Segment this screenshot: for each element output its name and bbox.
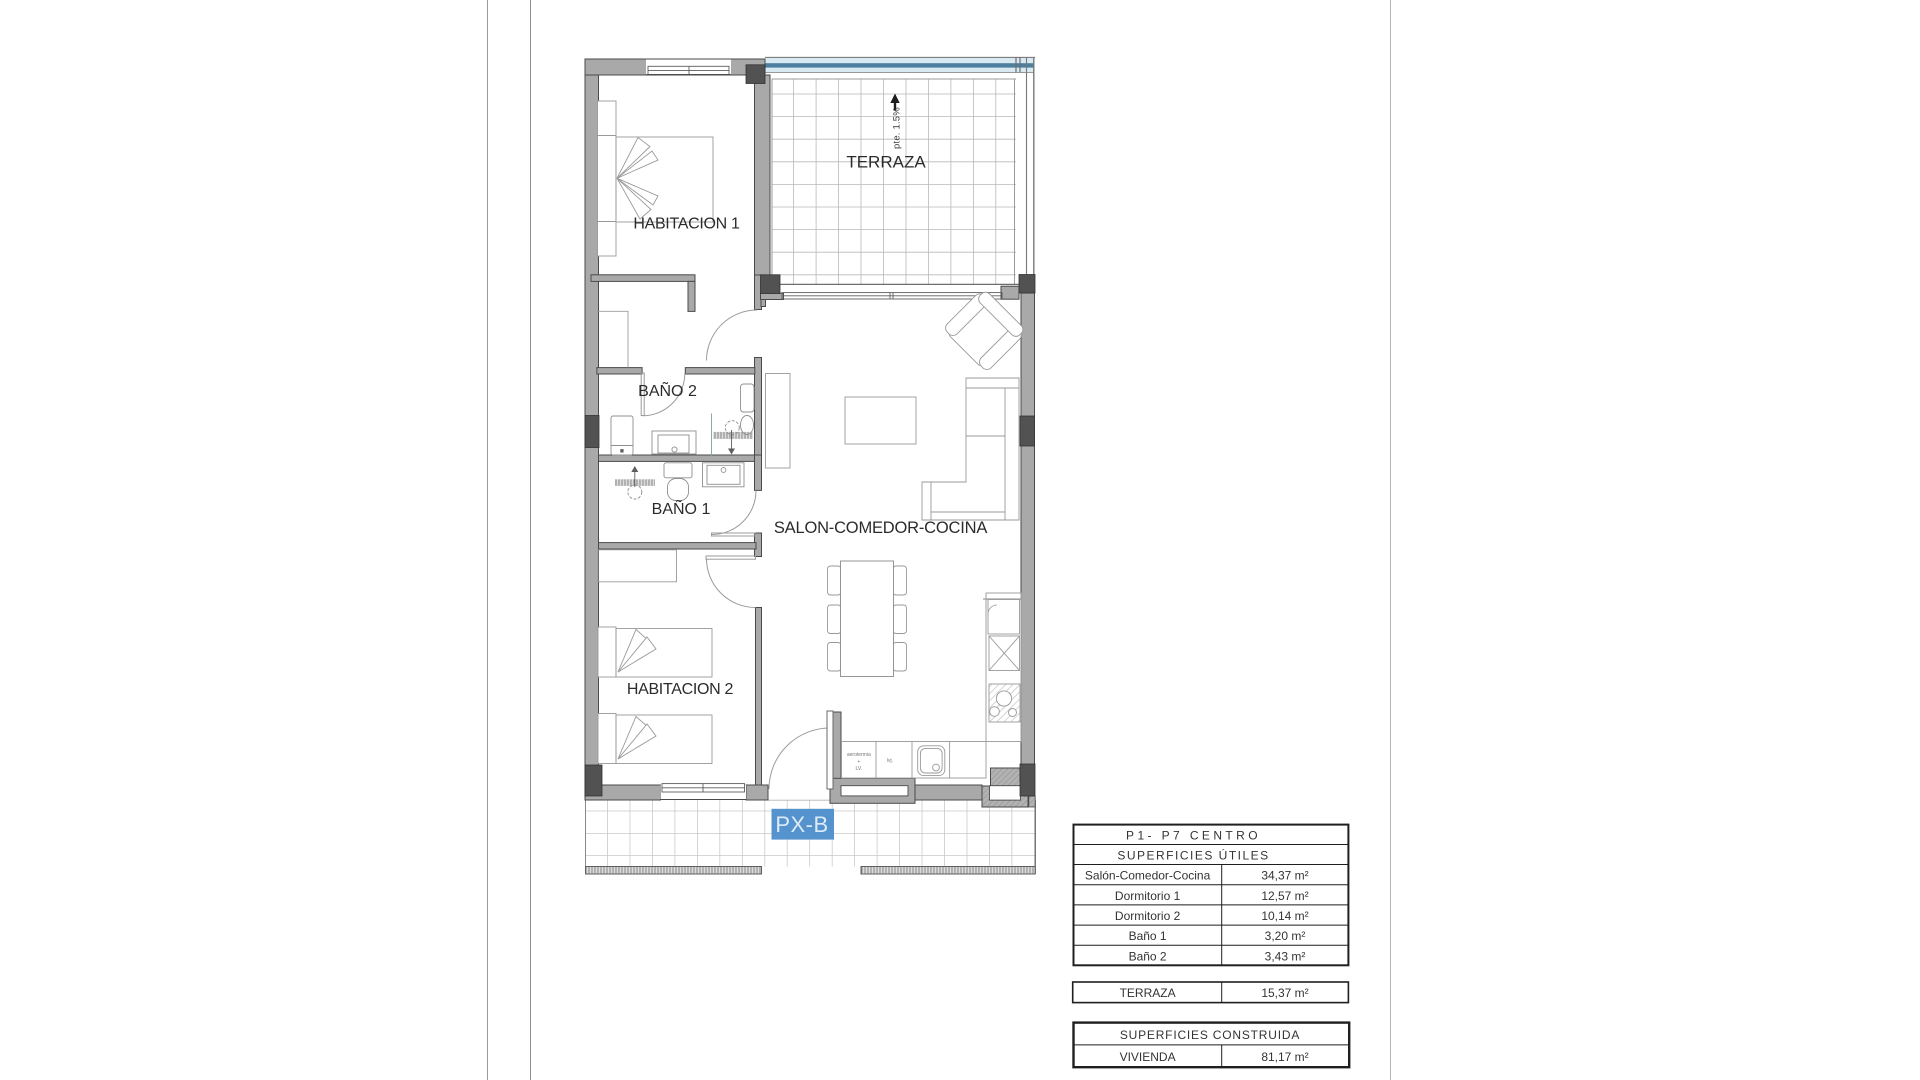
svg-text:81,17 m²: 81,17 m²	[1261, 1050, 1308, 1064]
svg-text:3,20 m²: 3,20 m²	[1265, 929, 1306, 943]
svg-text:15,37 m²: 15,37 m²	[1261, 986, 1308, 1000]
svg-text:BAÑO 2: BAÑO 2	[638, 380, 697, 400]
svg-text:HABITACION 2: HABITACION 2	[627, 681, 734, 698]
svg-text:SUPERFICIES CONSTRUIDA: SUPERFICIES CONSTRUIDA	[1120, 1028, 1300, 1042]
svg-text:Baño 1: Baño 1	[1129, 929, 1167, 943]
svg-text:+: +	[857, 759, 860, 765]
svg-text:Baño 2: Baño 2	[1129, 949, 1167, 963]
svg-text:pte. 1.5%: pte. 1.5%	[892, 107, 903, 149]
svg-text:HABITACION 1: HABITACION 1	[633, 215, 740, 232]
svg-text:PX-B: PX-B	[775, 812, 828, 837]
svg-text:Dormitorio 2: Dormitorio 2	[1115, 909, 1181, 923]
svg-text:3,43 m²: 3,43 m²	[1265, 949, 1306, 963]
svg-text:SALON-COMEDOR-COCINA: SALON-COMEDOR-COCINA	[774, 519, 987, 537]
svg-text:TERRAZA: TERRAZA	[846, 153, 926, 172]
svg-text:aerotermia: aerotermia	[847, 752, 871, 758]
svg-text:VIVIENDA: VIVIENDA	[1120, 1050, 1176, 1064]
svg-text:34,37 m²: 34,37 m²	[1261, 869, 1308, 883]
svg-text:Dormitorio 1: Dormitorio 1	[1115, 889, 1181, 903]
svg-text:LV.: LV.	[855, 766, 862, 772]
svg-text:P1- P7 CENTRO: P1- P7 CENTRO	[1126, 829, 1261, 843]
svg-text:10,14 m²: 10,14 m²	[1261, 909, 1308, 923]
svg-text:lvj.: lvj.	[887, 758, 893, 764]
svg-text:BAÑO 1: BAÑO 1	[652, 498, 711, 518]
svg-text:TERRAZA: TERRAZA	[1120, 986, 1176, 1000]
svg-text:Salón-Comedor-Cocina: Salón-Comedor-Cocina	[1085, 869, 1211, 883]
svg-text:12,57 m²: 12,57 m²	[1261, 889, 1308, 903]
svg-text:SUPERFICIES ÚTILES: SUPERFICIES ÚTILES	[1117, 848, 1269, 863]
